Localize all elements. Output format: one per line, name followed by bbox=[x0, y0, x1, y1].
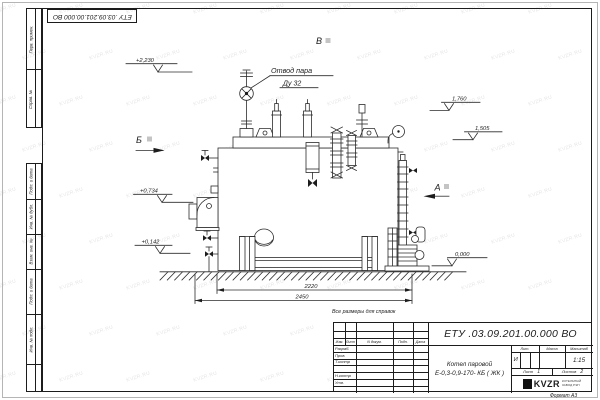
ground-hatch-line bbox=[321, 272, 329, 280]
tb-row-utv: Утв. bbox=[335, 379, 356, 386]
ground-hatch bbox=[160, 272, 453, 280]
ground-hatch-line bbox=[204, 272, 212, 280]
tb-sheet-value: 1 bbox=[537, 369, 540, 375]
company-name-line2: ЗАВОД РЭП bbox=[562, 384, 581, 387]
view-b-box bbox=[147, 137, 152, 142]
format-label: Формат А3 bbox=[535, 393, 592, 399]
manhole-cover bbox=[255, 229, 274, 246]
handwheel-hub bbox=[245, 92, 248, 95]
ground-hatch-line bbox=[343, 272, 351, 280]
burner bbox=[189, 198, 219, 231]
tb-sheets-value: 2 bbox=[580, 369, 583, 375]
dim-value-inner: 2220 bbox=[304, 284, 319, 290]
burner-housing bbox=[197, 198, 218, 228]
ground-hatch-line bbox=[255, 272, 263, 280]
elev-value: 0,000 bbox=[455, 252, 470, 258]
elev-symbol bbox=[156, 247, 165, 254]
column-top-fitting bbox=[401, 155, 406, 161]
ground-hatch-line bbox=[357, 272, 365, 280]
view-v-box bbox=[326, 38, 331, 43]
ground-hatch-line bbox=[379, 272, 387, 280]
tb-sheets-label: Листов bbox=[562, 369, 577, 374]
ground-hatch-line bbox=[262, 272, 270, 280]
manhole bbox=[255, 229, 274, 246]
lever-weight bbox=[359, 105, 365, 114]
ground-hatch-line bbox=[167, 272, 175, 280]
tb-header-list: Лист bbox=[345, 338, 356, 345]
cylinder bbox=[306, 143, 319, 173]
pressure-gauge bbox=[388, 126, 405, 144]
ground-hatch-line bbox=[306, 272, 314, 280]
tb-product-name-line1: Котел паровой bbox=[447, 360, 492, 369]
elevation-steam-outlet: +2,230 bbox=[126, 58, 192, 72]
valve-bowtie bbox=[207, 235, 211, 240]
tb-row-tkontr: Т.контр bbox=[335, 359, 356, 366]
elev-value: +0,142 bbox=[142, 240, 161, 246]
elevation-right-lower: 1,505 bbox=[453, 126, 502, 140]
ground-hatch-line bbox=[218, 272, 226, 280]
burner-mount bbox=[189, 204, 197, 219]
leader-line bbox=[251, 76, 270, 88]
tb-row-prov: Пров. bbox=[335, 352, 356, 359]
valve-bowtie bbox=[205, 251, 209, 256]
company-name: КОТЕЛЬНЫЙ ЗАВОД РЭП bbox=[562, 380, 581, 387]
tb-line bbox=[530, 352, 531, 368]
view-a-arrowhead bbox=[424, 194, 436, 199]
shell-nozzle bbox=[211, 186, 218, 193]
ground-hatch-line bbox=[211, 272, 219, 280]
tb-header-docnum: N докум. bbox=[356, 338, 393, 345]
gauge-valve-cross bbox=[347, 131, 357, 136]
reference-note: Все размеры для справок bbox=[332, 309, 395, 315]
ground-hatch-line bbox=[291, 272, 299, 280]
gauge-glass bbox=[348, 136, 356, 166]
kvzr-logo-icon bbox=[523, 379, 532, 389]
tb-header-data: Дата bbox=[413, 338, 428, 345]
ground-hatch-line bbox=[175, 272, 183, 280]
elev-symbol bbox=[154, 65, 163, 72]
kvzr-logo-text: KVZR bbox=[534, 379, 560, 389]
steam-outlet-label: Отвод пара bbox=[271, 66, 312, 75]
tb-line bbox=[520, 352, 521, 368]
elev-symbol bbox=[448, 259, 457, 266]
tb-row-razrab: Разраб. bbox=[335, 345, 356, 352]
ground bbox=[160, 272, 466, 280]
elev-value: 1,760 bbox=[452, 97, 467, 103]
dim-value-outer: 2450 bbox=[295, 295, 310, 301]
tb-lit-header: Лит. bbox=[511, 345, 539, 352]
ground-hatch-line bbox=[189, 272, 197, 280]
dim-arrowhead bbox=[195, 299, 202, 303]
tb-row-empty bbox=[335, 365, 356, 372]
right-instrument-column bbox=[398, 152, 418, 247]
ground-hatch-line bbox=[430, 272, 438, 280]
ground-hatch-line bbox=[386, 272, 394, 280]
ground-hatch-line bbox=[423, 272, 431, 280]
motor-end-cap bbox=[415, 251, 424, 260]
lifting-lug bbox=[360, 129, 378, 138]
safety-valves bbox=[272, 100, 313, 138]
title-block: Изм. Лист N докум. Подп. Дата Разраб. Пр… bbox=[333, 322, 592, 392]
valve-bowtie bbox=[409, 168, 413, 173]
elev-symbol bbox=[469, 133, 478, 140]
valve-bowtie bbox=[205, 155, 209, 161]
pump-port bbox=[412, 236, 419, 243]
tb-header-podp: Подп. bbox=[393, 338, 413, 345]
ground-hatch-line bbox=[226, 272, 234, 280]
elev-symbol bbox=[445, 104, 454, 111]
tb-line bbox=[334, 386, 428, 387]
ground-hatch-line bbox=[335, 272, 343, 280]
support-leg bbox=[250, 237, 256, 271]
steam-outlet-size: Ду 32 bbox=[282, 81, 301, 88]
ground-hatch-line bbox=[240, 272, 248, 280]
pump-base bbox=[385, 266, 429, 271]
tb-doc-number: ЕТУ .03.09.201.00.000 ВО bbox=[428, 323, 593, 345]
ground-hatch-line bbox=[364, 272, 372, 280]
tb-header-izm: Изм. bbox=[334, 338, 345, 345]
tb-scale-header: Масштаб bbox=[565, 345, 593, 352]
ground-hatch-line bbox=[445, 272, 453, 280]
safety-valve-neck bbox=[306, 104, 310, 112]
valve-bowtie bbox=[409, 230, 413, 235]
ground-hatch-line bbox=[160, 272, 168, 280]
ground-hatch-line bbox=[299, 272, 307, 280]
valve-bowtie bbox=[413, 168, 417, 173]
lifting-lug bbox=[256, 129, 274, 138]
elev-value: +0,734 bbox=[140, 189, 158, 195]
elevation-ground: 0,000 bbox=[432, 252, 487, 266]
valve-bowtie bbox=[209, 251, 213, 256]
view-b-arrowhead bbox=[154, 148, 165, 153]
elev-value: +2,230 bbox=[136, 58, 155, 64]
support-leg bbox=[240, 237, 246, 271]
ground-hatch-line bbox=[197, 272, 205, 280]
gauge-glass bbox=[333, 133, 342, 178]
tb-product-name: Котел паровой Е-0,3-0,9-170- КБ ( ЖК ) bbox=[428, 345, 511, 393]
valve-bowtie bbox=[201, 155, 205, 161]
view-a-box bbox=[444, 184, 449, 189]
steam-outlet-valve bbox=[240, 70, 254, 137]
tb-product-name-line2: Е-0,3-0,9-170- КБ ( ЖК ) bbox=[435, 369, 504, 378]
tb-scale-value: 1:15 bbox=[565, 352, 593, 368]
support-leg bbox=[362, 237, 368, 271]
elevation-drain: +0,142 bbox=[135, 240, 190, 254]
valve-base-flange bbox=[240, 129, 253, 138]
elev-symbol bbox=[158, 196, 167, 203]
ground-hatch-line bbox=[270, 272, 278, 280]
dim-arrowhead bbox=[217, 288, 224, 292]
feed-pump-unit bbox=[385, 227, 429, 271]
tb-mass-header: Масса bbox=[539, 345, 565, 352]
skid-rail bbox=[251, 258, 374, 268]
column-body bbox=[399, 161, 407, 248]
elevation-burner: +0,734 bbox=[134, 189, 194, 203]
base-frame bbox=[251, 258, 374, 268]
ground-hatch-line bbox=[372, 272, 380, 280]
ground-hatch-line bbox=[350, 272, 358, 280]
steam-outlet-callout: Отвод пара Ду 32 bbox=[251, 66, 333, 88]
ground-hatch-line bbox=[284, 272, 292, 280]
tb-row-nkontr: Н.контр bbox=[335, 372, 356, 379]
view-label-b: Б bbox=[136, 135, 142, 145]
tb-sheet-label: Лист bbox=[523, 369, 533, 374]
tb-lit-value: И bbox=[511, 352, 520, 368]
dim-arrowhead bbox=[405, 299, 412, 303]
ground-hatch-line bbox=[416, 272, 424, 280]
dim-arrowhead bbox=[405, 288, 412, 292]
elev-value: 1,505 bbox=[475, 126, 490, 132]
burner-plate bbox=[196, 228, 219, 231]
ground-hatch-line bbox=[401, 272, 409, 280]
view-label-v: В bbox=[316, 36, 322, 46]
gauge-valve-cross bbox=[331, 127, 343, 133]
elevation-right-upper: 1,760 bbox=[430, 97, 480, 111]
ground-hatch-line bbox=[233, 272, 241, 280]
gauge-needle-hub bbox=[397, 130, 399, 132]
tb-sheet-cell: Лист 1 bbox=[511, 368, 552, 375]
tb-sheets-cell: Листов 2 bbox=[552, 368, 593, 375]
ground-hatch-line bbox=[328, 272, 336, 280]
safety-valve-neck bbox=[275, 104, 279, 112]
ground-hatch-line bbox=[394, 272, 402, 280]
view-label-a: А bbox=[434, 183, 441, 193]
motor-body bbox=[398, 245, 417, 266]
boiler-shell bbox=[211, 129, 398, 271]
support-leg bbox=[372, 237, 378, 271]
valve-bowtie bbox=[203, 235, 207, 240]
tb-company-cell: KVZR КОТЕЛЬНЫЙ ЗАВОД РЭП bbox=[511, 375, 593, 393]
ground-hatch-line bbox=[277, 272, 285, 280]
ground-hatch-line bbox=[248, 272, 256, 280]
tb-line bbox=[334, 331, 428, 332]
ground-hatch-line bbox=[437, 272, 445, 280]
ground-hatch-line bbox=[313, 272, 321, 280]
drawing-sheet: KVZR.RUKVZR.RUKVZR.RUKVZR.RUKVZR.RUKVZR.… bbox=[0, 0, 600, 400]
ground-hatch-line bbox=[182, 272, 190, 280]
